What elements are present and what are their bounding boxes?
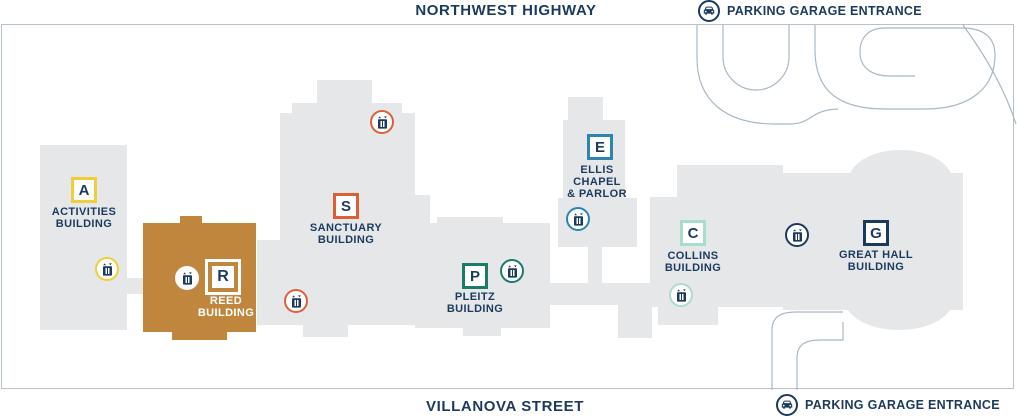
elevator-icon xyxy=(785,223,809,247)
parking-garage-entrance-bottom: PARKING GARAGE ENTRANCE xyxy=(776,394,1000,416)
badge-ellis-chapel[interactable]: E xyxy=(587,134,613,160)
activities-reed-connector xyxy=(127,278,143,294)
car-icon xyxy=(698,0,720,22)
parking-garage-entrance-label: PARKING GARAGE ENTRANCE xyxy=(727,4,922,18)
parking-garage-entrance-label: PARKING GARAGE ENTRANCE xyxy=(805,398,1000,412)
label-pleitz-building: PLEITZ BUILDING xyxy=(447,291,503,315)
activities-building-shape xyxy=(40,145,127,330)
elevator-icon xyxy=(95,257,119,281)
pleitz-building-shape xyxy=(400,295,418,315)
badge-collins-building[interactable]: C xyxy=(680,220,706,246)
sanctuary-building-shape xyxy=(317,80,372,105)
label-collins-building: COLLINS BUILDING xyxy=(665,250,721,274)
collins-building-shape xyxy=(677,165,783,210)
street-label-northwest-highway: NORTHWEST HIGHWAY xyxy=(415,2,596,19)
corridor-shape xyxy=(618,305,652,338)
car-icon xyxy=(776,394,798,416)
elevator-icon xyxy=(566,207,590,231)
label-sanctuary-building: SANCTUARY BUILDING xyxy=(310,222,382,246)
street-label-villanova-street: VILLANOVA STREET xyxy=(426,398,584,415)
sanctuary-building-shape xyxy=(280,113,415,240)
label-reed-building: REED BUILDING xyxy=(198,295,254,319)
elevator-icon xyxy=(175,266,199,290)
elevator-icon xyxy=(284,289,308,313)
elevator-icon xyxy=(370,110,394,134)
collins-building-shape xyxy=(658,307,718,325)
label-ellis-chapel: ELLIS CHAPEL & PARLOR xyxy=(567,164,627,200)
badge-great-hall-building[interactable]: G xyxy=(863,220,889,246)
parking-garage-entrance-top: PARKING GARAGE ENTRANCE xyxy=(698,0,922,22)
label-activities-building: ACTIVITIES BUILDING xyxy=(52,206,117,230)
ellis-chapel-shape xyxy=(568,97,603,122)
badge-activities-building[interactable]: A xyxy=(71,177,97,203)
label-great-hall-building: GREAT HALL BUILDING xyxy=(839,249,913,273)
reed-building-shape xyxy=(180,216,202,224)
elevator-icon xyxy=(500,259,524,283)
ellis-chapel-shape xyxy=(588,247,602,287)
pleitz-building-shape xyxy=(437,217,503,225)
reed-building-shape xyxy=(172,332,227,340)
badge-pleitz-building[interactable]: P xyxy=(462,263,488,289)
campus-map: A R S P E C G ACTIVITIES BUILDING REED B… xyxy=(0,0,1017,417)
badge-sanctuary-building[interactable]: S xyxy=(333,193,359,219)
elevator-icon xyxy=(669,283,693,307)
corridor-shape xyxy=(550,283,653,305)
pleitz-building-shape xyxy=(463,328,501,336)
badge-reed-building[interactable]: R xyxy=(208,262,238,292)
sanctuary-building-shape xyxy=(303,325,348,337)
